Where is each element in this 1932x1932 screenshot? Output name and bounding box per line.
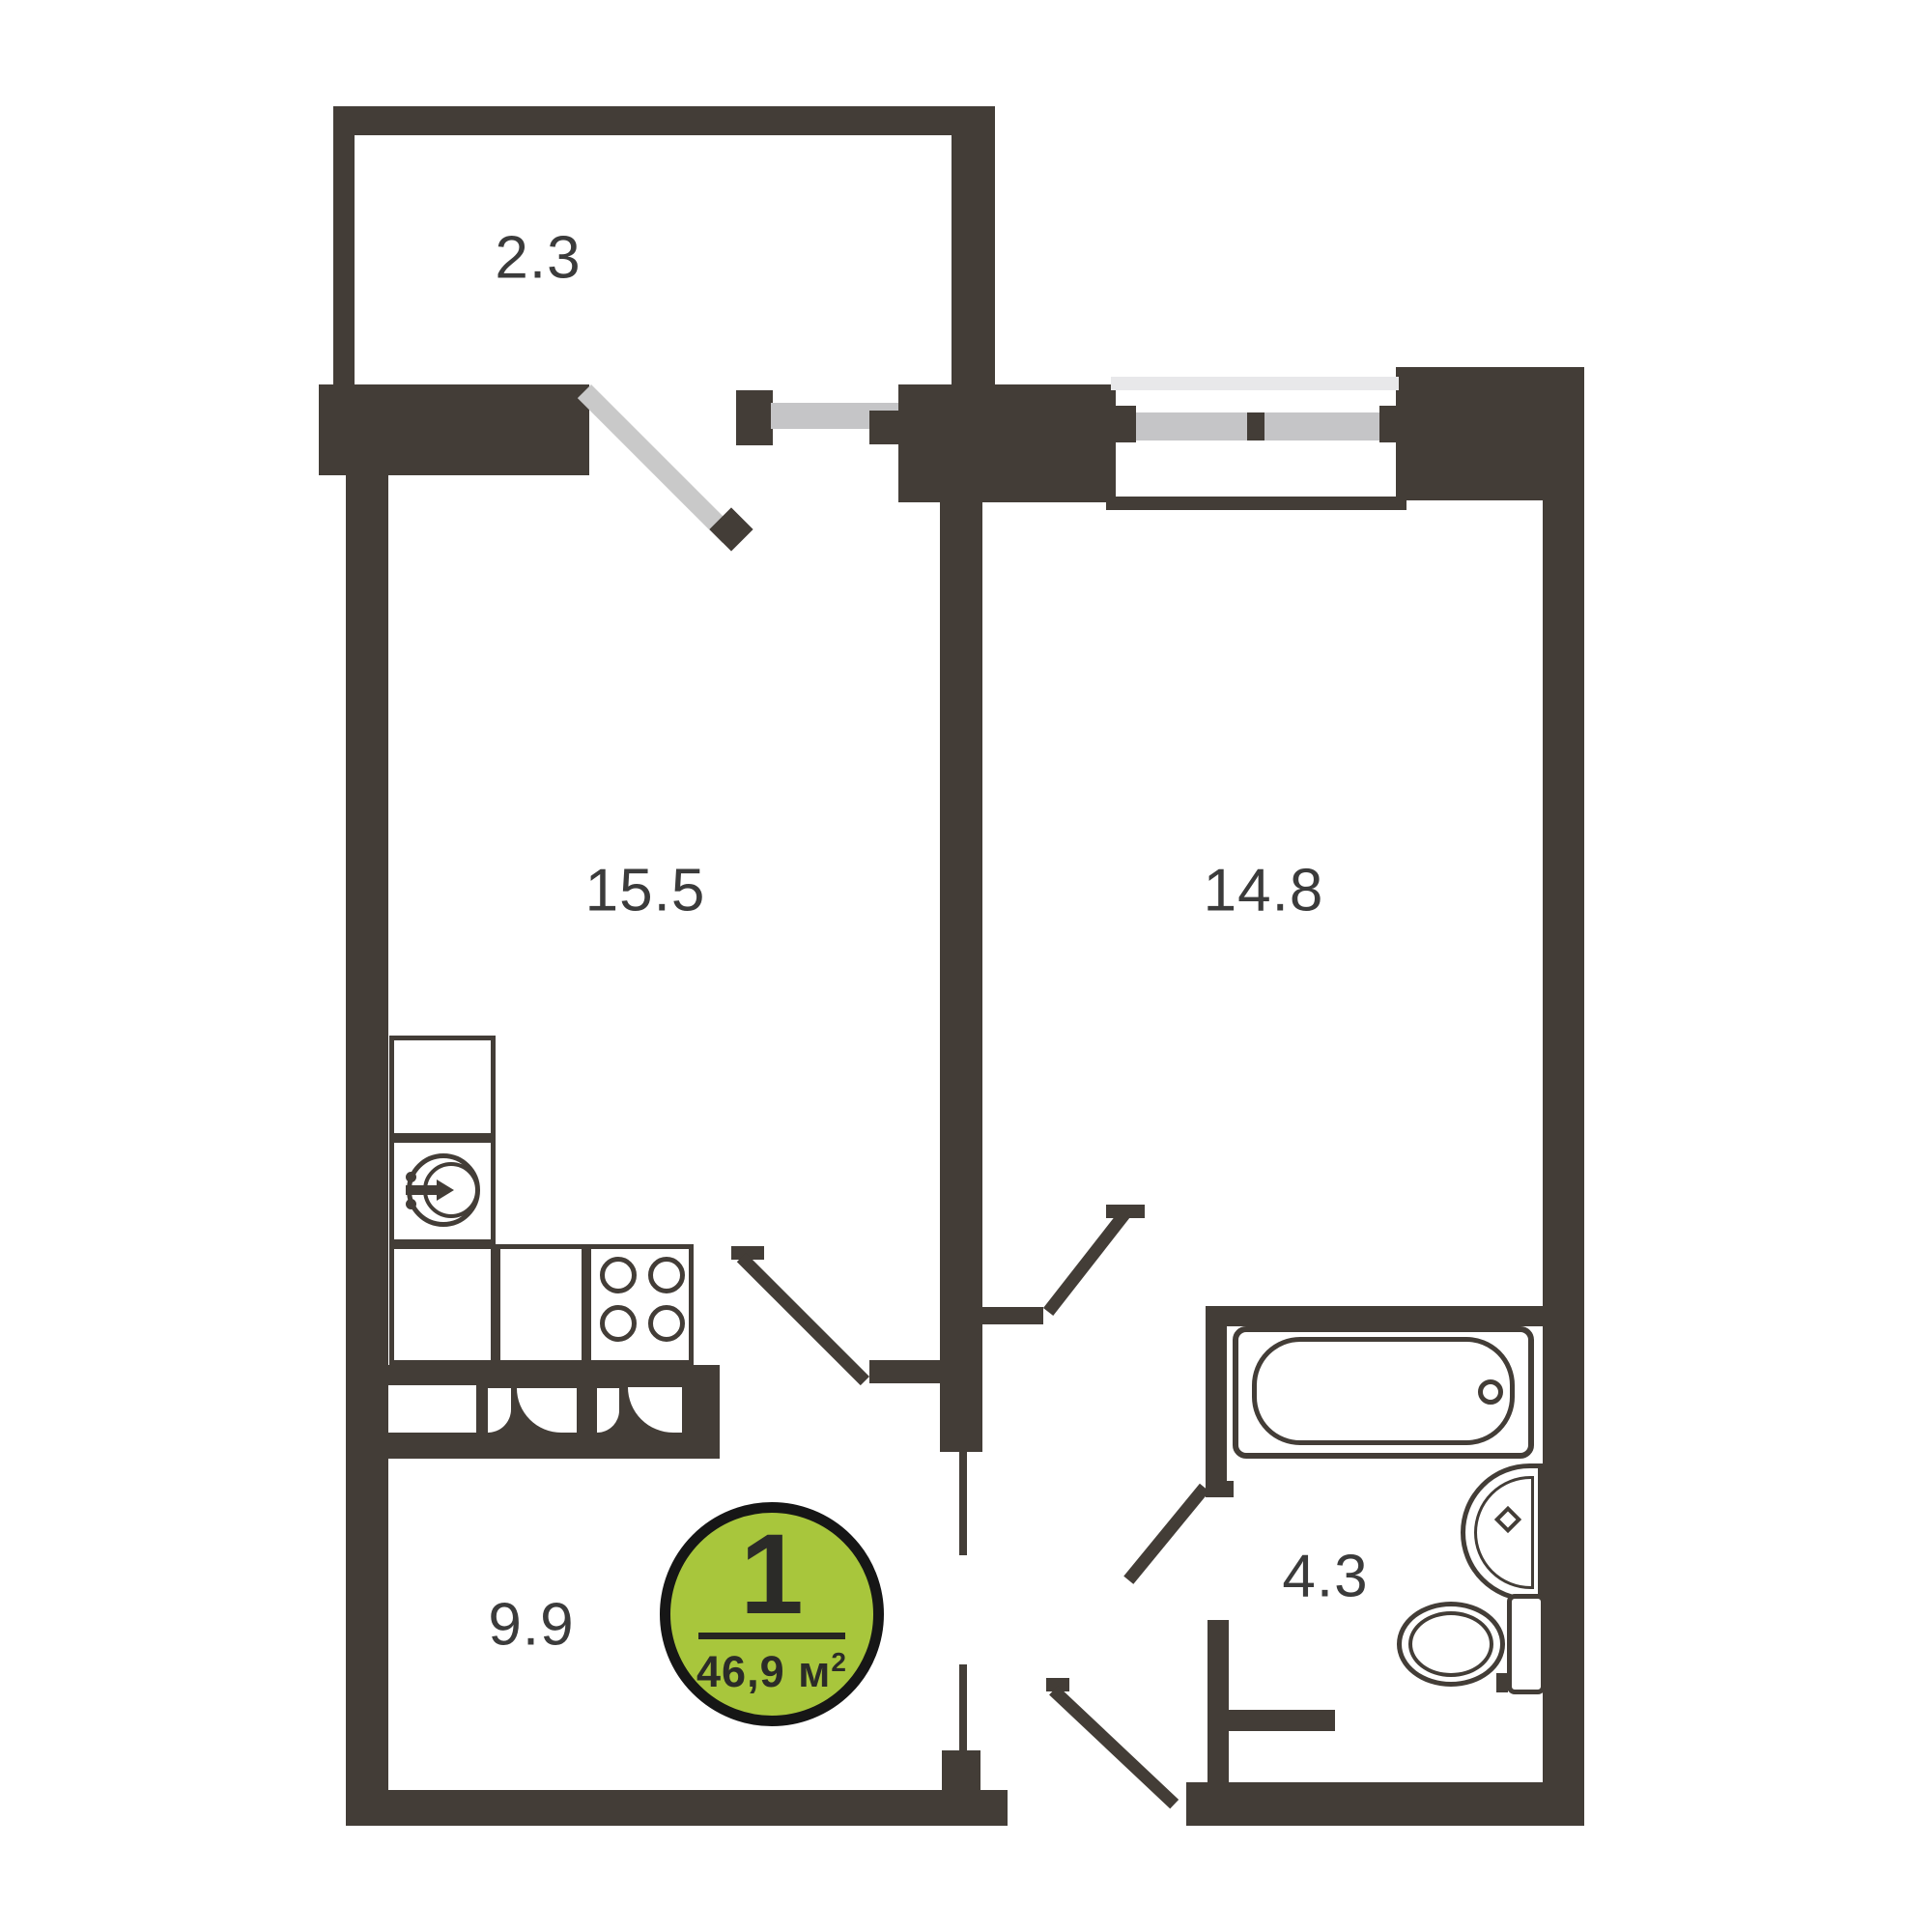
bathroom-left-wall-step: [1206, 1481, 1234, 1497]
bedroom-door-icon: [1043, 1207, 1132, 1316]
toilet-bowl-inner: [1408, 1611, 1493, 1677]
bedroom-door-stub: [982, 1307, 1043, 1324]
room-label-bathroom: 4.3: [1282, 1543, 1368, 1611]
bathroom-top-wall: [1206, 1306, 1546, 1326]
badge-divider: [698, 1633, 845, 1639]
kitchen-door-stub: [869, 1360, 942, 1383]
kitchen-faucet-dot-top: [406, 1172, 416, 1182]
bedroom-window-step-right: [1379, 406, 1405, 442]
balcony-door-icon: [578, 384, 736, 543]
kitchen-faucet-arrow: [437, 1179, 454, 1201]
badge-rooms-count: 1: [740, 1523, 804, 1626]
right-wall: [1543, 367, 1584, 1826]
bathroom-partition-stub: [1229, 1710, 1335, 1731]
bottom-wall-right: [1186, 1782, 1584, 1826]
bedroom-window-sill: [1106, 497, 1406, 510]
toilet-tank-foot: [1496, 1673, 1508, 1692]
bottom-wall-left: [346, 1790, 1008, 1826]
balcony-window-jamb: [736, 390, 773, 445]
stove-burner-1: [600, 1257, 637, 1293]
kitchen-cabinet-corner: [389, 1244, 496, 1365]
floor-plan: 2.3 15.5 14.8 9.9 4.3 1 46,9 м2: [0, 0, 1932, 1932]
entrance-jamb-stub: [942, 1750, 980, 1790]
center-wall: [940, 475, 982, 1452]
bedroom-topwall-left-block: [898, 384, 1116, 502]
bedroom-door-nub: [1106, 1205, 1145, 1218]
balcony-top-wall: [333, 106, 995, 135]
bathroom-partition-vertical: [1207, 1620, 1229, 1784]
stove-burner-3: [600, 1305, 637, 1342]
bedroom-window-mullion: [1247, 412, 1264, 440]
kitchen-door-icon: [737, 1253, 869, 1385]
left-wall: [346, 384, 388, 1826]
bedroom-window-outer-pane: [1111, 377, 1399, 390]
hall-partition-line-upper: [959, 1452, 967, 1555]
room-label-kitchen-living: 15.5: [585, 857, 706, 925]
room-label-bedroom: 14.8: [1204, 857, 1324, 925]
toilet-tank: [1507, 1594, 1546, 1694]
room-label-balcony: 2.3: [495, 224, 581, 293]
stove-burner-2: [648, 1257, 685, 1293]
bathtub-drain-icon: [1478, 1379, 1503, 1405]
bathroom-door-icon: [1123, 1484, 1209, 1584]
badge-total-area: 46,9 м2: [696, 1647, 847, 1697]
counter-cutout-1: [388, 1385, 476, 1433]
kitchen-cabinet-top: [389, 1036, 496, 1138]
balcony-left-wall: [333, 106, 355, 388]
kitchen-faucet-dot-bottom: [406, 1199, 416, 1209]
hall-partition-line-lower: [959, 1664, 967, 1750]
entrance-door-icon: [1049, 1686, 1179, 1808]
bedroom-window-step-left: [1111, 406, 1136, 442]
kitchen-cabinet-mid: [496, 1244, 586, 1365]
bathroom-left-wall: [1206, 1326, 1227, 1481]
bathtub-basin: [1252, 1337, 1515, 1445]
balcony-right-wall: [952, 106, 995, 396]
stove-burner-4: [648, 1305, 685, 1342]
room-label-hall: 9.9: [488, 1591, 574, 1660]
apartment-badge: 1 46,9 м2: [660, 1502, 884, 1726]
